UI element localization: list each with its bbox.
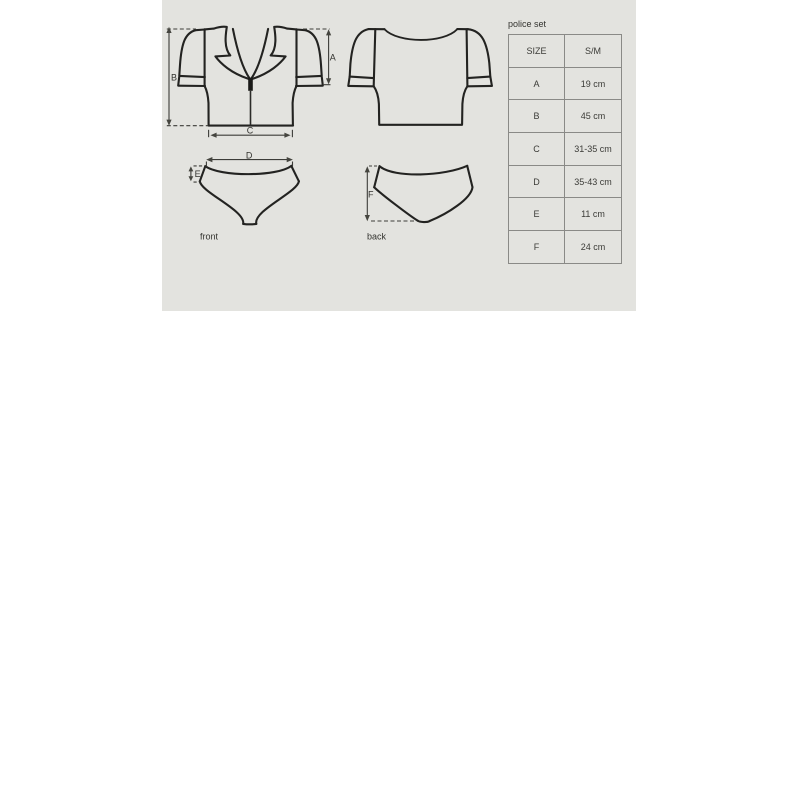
svg-text:D: D <box>246 150 253 160</box>
svg-text:A: A <box>330 53 336 63</box>
svg-text:B: B <box>171 72 177 82</box>
svg-text:E: E <box>195 169 201 179</box>
svg-text:F: F <box>368 189 374 199</box>
svg-text:front: front <box>200 232 219 242</box>
svg-text:C: C <box>247 126 254 136</box>
svg-text:back: back <box>367 232 387 242</box>
